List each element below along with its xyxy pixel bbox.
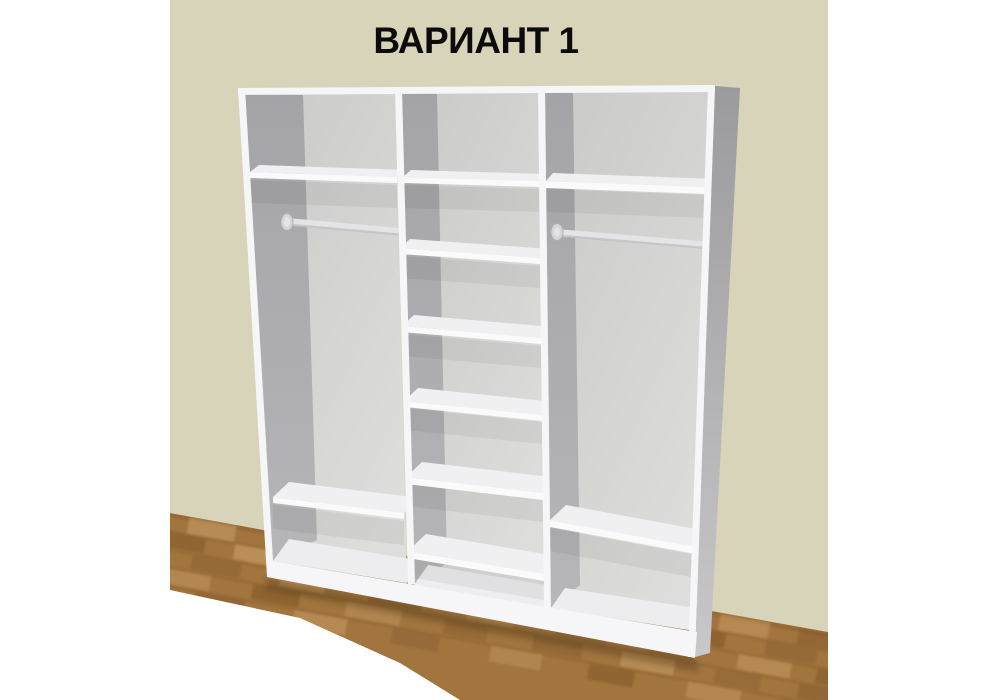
wardrobe	[238, 85, 740, 658]
left-section	[245, 91, 423, 583]
render-canvas: ВАРИАНТ 1	[0, 0, 1000, 700]
shelf-1	[403, 170, 548, 212]
wardrobe-render	[0, 0, 1000, 700]
top-shelf	[546, 173, 714, 218]
top-shelf	[250, 165, 406, 208]
middle-section	[400, 90, 562, 607]
variant-title: ВАРИАНТ 1	[373, 20, 578, 62]
right-section	[545, 90, 714, 630]
